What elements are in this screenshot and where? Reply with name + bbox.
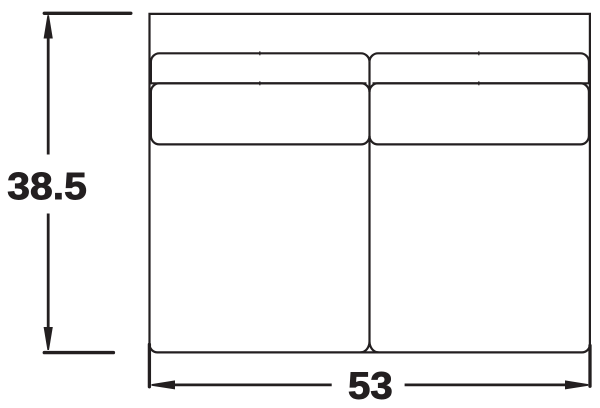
svg-text:53: 53 (348, 366, 393, 408)
svg-text:38.5: 38.5 (7, 166, 87, 208)
